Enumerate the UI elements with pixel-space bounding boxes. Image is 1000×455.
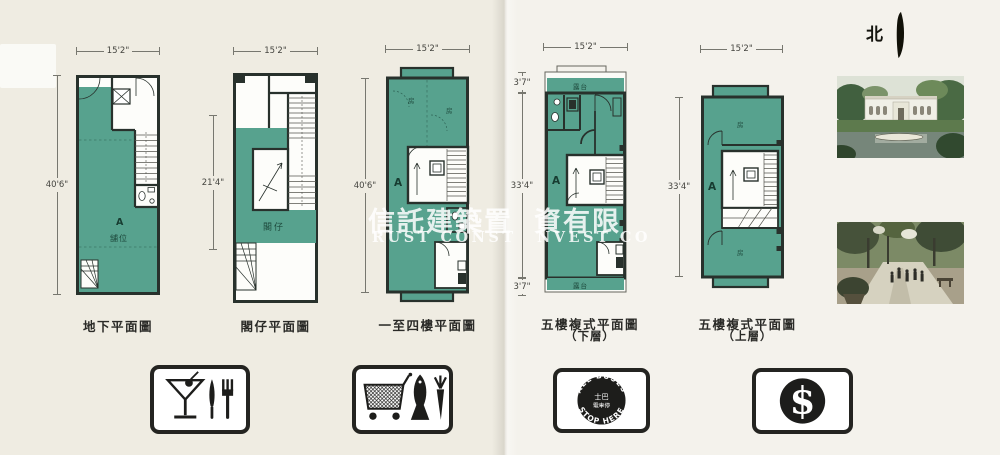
dollar-icon: $ [756, 372, 849, 430]
plan3-width-label: 15'2" [416, 44, 438, 54]
plan1-room-label: 舖位 [110, 233, 128, 243]
plan3-room-right-label: 房 [446, 106, 453, 115]
dining-icon [154, 369, 246, 430]
plan1-height-label: 40'6" [46, 180, 68, 190]
plan1-left-dimension: 40'6" [40, 75, 74, 295]
plan3-caption: 一至四樓平面圖 [375, 315, 480, 334]
plan3-room-top-label: 房 [408, 96, 415, 105]
plan2-height-label: 21'4" [202, 178, 224, 188]
plan4-caption-sub: （下層） [535, 328, 645, 344]
plan5-height-label: 33'4" [668, 182, 690, 192]
plan3-top-dimension: 15'2" [385, 44, 470, 54]
plan5-top-dimension: 15'2" [700, 44, 783, 54]
plan5-room-top-label: 房 [737, 120, 744, 129]
plan5-unit-label: A [708, 181, 717, 193]
plan5-room-bottom-label: 房 [737, 248, 744, 257]
amenity-shopping-box [352, 365, 453, 434]
bus-center-line1: 士巴 [594, 393, 608, 402]
photo-street-scene [837, 222, 964, 304]
plan4-balcony-bottom-label: 露台 [573, 281, 588, 290]
dollar-symbol: $ [790, 379, 816, 423]
brochure-page: 15'2" 40'6" A 舖位 地下平面圖 15'2" [0, 0, 1000, 455]
floor-plan-cockloft: 閣仔 [233, 73, 318, 303]
plan4-balcony-bottom-dim: 3'7" [513, 282, 530, 292]
plan3-height-label: 40'6" [354, 181, 376, 191]
plan3-left-dimension: 40'6" [348, 78, 382, 293]
amenity-money-box: $ [752, 368, 853, 434]
plan1-unit-label: A [116, 217, 124, 228]
plan1-top-dimension: 15'2" [76, 46, 160, 56]
plan1-width-label: 15'2" [107, 46, 129, 56]
north-label: 北 [866, 20, 883, 45]
plan2-room-label: 閣仔 [263, 221, 285, 233]
plan4-top-dimension: 15'2" [543, 42, 628, 52]
north-arrow-icon [893, 12, 907, 58]
plan2-top-dimension: 15'2" [233, 46, 318, 56]
plan4-balcony-top-label: 露台 [573, 82, 588, 91]
plan2-left-dimension: 21'4" [196, 115, 230, 250]
amenity-dining-box [150, 365, 250, 434]
plan4-width-label: 15'2" [574, 42, 596, 52]
bus-stop-icon: ALL BUSES STOP HERE 士巴 電車停 [557, 372, 646, 429]
plan4-height-label: 33'4" [511, 181, 533, 191]
plan4-balcony-top-dim: 3'7" [513, 78, 530, 88]
plan4-unit-label: A [552, 175, 561, 187]
floor-plan-duplex-upper: 房 A 房 [700, 83, 785, 290]
plan5-width-label: 15'2" [730, 44, 752, 54]
plan5-caption-sub: （上層） [695, 328, 800, 344]
plan2-caption: 閣仔平面圖 [233, 316, 318, 335]
floor-plan-floors-1-4: 房 房 A [385, 65, 470, 305]
plan4-left-top-dimension: 3'7" [505, 72, 539, 93]
plan5-left-dimension: 33'4" [662, 97, 696, 277]
plan3-unit-label: A [394, 177, 403, 189]
shopping-icon [356, 369, 449, 430]
plan1-caption: 地下平面圖 [76, 316, 160, 335]
photo-garden-building [837, 76, 964, 158]
plan2-width-label: 15'2" [264, 46, 286, 56]
floor-plan-ground: A 舖位 [76, 75, 160, 295]
amenity-bus-stop-box: ALL BUSES STOP HERE 士巴 電車停 [553, 368, 650, 433]
floor-plan-duplex-lower: 露台 露台 A [543, 64, 628, 296]
bus-center-line2: 電車停 [593, 402, 611, 410]
plan4-left-mid-dimension: 33'4" [505, 93, 539, 278]
plan4-left-bottom-dimension: 3'7" [505, 278, 539, 296]
